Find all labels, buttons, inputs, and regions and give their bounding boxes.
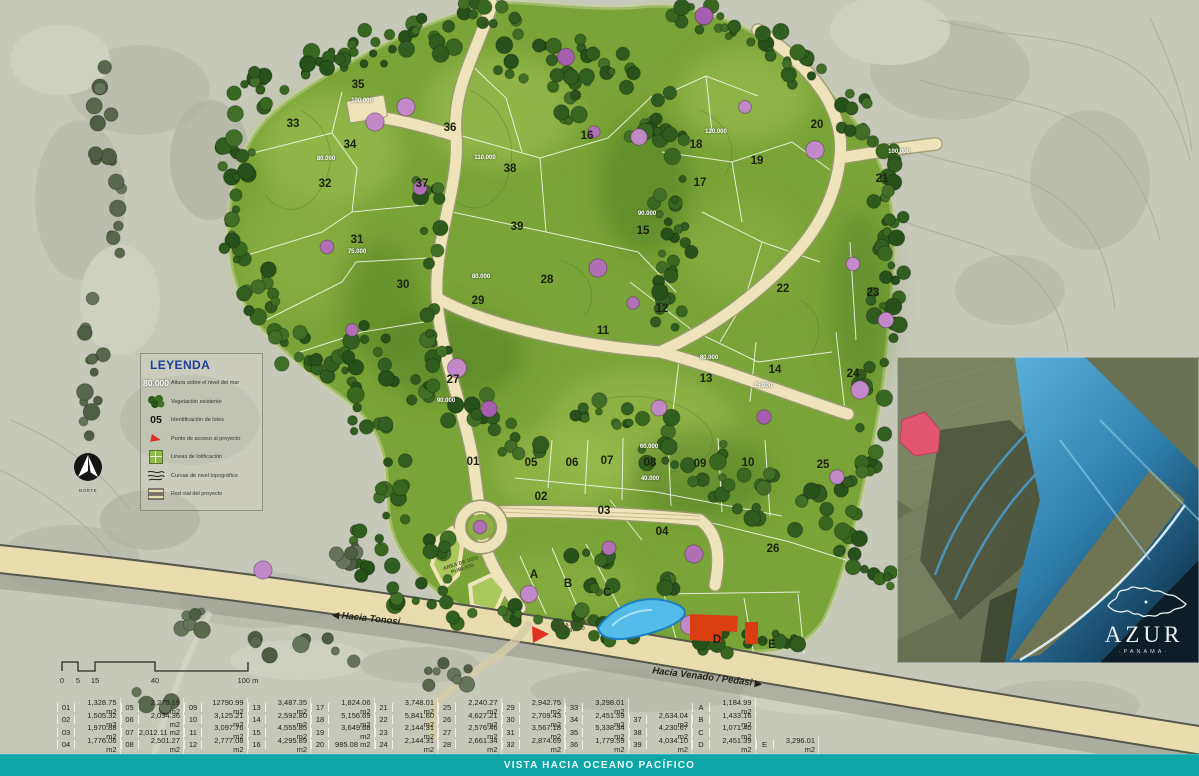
tree-icon bbox=[493, 66, 502, 75]
tree-icon bbox=[488, 423, 501, 436]
tree-icon bbox=[227, 86, 241, 100]
tree-icon bbox=[882, 185, 895, 198]
lot-id: 13 bbox=[248, 703, 266, 712]
lot-number-label: 13 bbox=[700, 373, 713, 385]
lot-number-label: 20 bbox=[811, 119, 824, 131]
tree-icon bbox=[479, 388, 494, 403]
satellite-inset bbox=[897, 357, 1199, 663]
lot-number-label: 07 bbox=[601, 455, 614, 467]
lot-area: 2,661.34 m2 bbox=[456, 736, 502, 754]
tree-icon bbox=[225, 130, 242, 147]
tree-icon bbox=[844, 125, 856, 137]
site-plan-canvas: 3533343231363738391615182019172122231211… bbox=[0, 0, 1199, 776]
tree-icon bbox=[752, 503, 761, 512]
tree-icon bbox=[773, 23, 789, 39]
lot-id: 32 bbox=[502, 740, 520, 749]
tree-icon bbox=[688, 476, 699, 487]
tree-icon bbox=[790, 44, 806, 60]
tree-icon bbox=[807, 72, 816, 81]
lot-number-label: 33 bbox=[287, 118, 300, 130]
lot-id: D bbox=[692, 740, 710, 749]
flowering-tree-icon bbox=[557, 48, 574, 65]
flowering-tree-icon bbox=[481, 401, 497, 417]
lot-id: 28 bbox=[438, 740, 456, 749]
tree-icon bbox=[772, 630, 779, 637]
elevation-label: 75.000 bbox=[348, 249, 366, 255]
lot-area: 4,034.10 m2 bbox=[647, 736, 693, 754]
tree-icon bbox=[434, 193, 446, 205]
lot-id: E bbox=[756, 740, 774, 749]
tree-icon bbox=[595, 554, 608, 567]
tree-icon bbox=[664, 269, 678, 283]
lot-id: 22 bbox=[375, 715, 393, 724]
tree-icon bbox=[446, 611, 459, 624]
lot-id: 39 bbox=[629, 740, 647, 749]
tree-icon bbox=[878, 246, 893, 261]
tree-icon bbox=[400, 515, 410, 525]
tree-icon bbox=[98, 60, 112, 74]
tree-icon bbox=[86, 292, 99, 305]
tree-icon bbox=[650, 113, 662, 125]
lot-id: 04 bbox=[57, 740, 75, 749]
tree-icon bbox=[77, 384, 94, 401]
footer-caption: VISTA HACIA OCEANO PACÍFICO bbox=[504, 760, 695, 771]
tree-icon bbox=[424, 667, 432, 675]
lot-area-cell: 394,034.10 m2 bbox=[629, 739, 693, 750]
flowering-tree-icon bbox=[757, 410, 771, 424]
tree-icon bbox=[550, 68, 564, 82]
tree-icon bbox=[378, 370, 394, 386]
flowering-tree-icon bbox=[695, 7, 713, 25]
lot-area-cell: 322,874.69 m2 bbox=[502, 739, 566, 750]
tree-icon bbox=[662, 457, 670, 465]
tree-icon bbox=[685, 245, 698, 258]
lot-id: 06 bbox=[121, 715, 139, 724]
flowering-tree-icon bbox=[851, 381, 869, 399]
lot-id: 21 bbox=[375, 703, 393, 712]
tree-icon bbox=[194, 622, 211, 639]
tree-icon bbox=[358, 23, 372, 37]
tree-icon bbox=[722, 479, 735, 492]
tree-icon bbox=[443, 20, 455, 32]
lot-id: 07 bbox=[121, 728, 139, 737]
elevation-label: 120.000 bbox=[705, 129, 727, 135]
tree-icon bbox=[679, 175, 686, 182]
flowering-tree-icon bbox=[830, 470, 844, 484]
tree-icon bbox=[834, 546, 845, 557]
tree-icon bbox=[803, 483, 819, 499]
tree-icon bbox=[710, 453, 727, 470]
lot-number-label: 05 bbox=[525, 457, 538, 469]
flowering-tree-icon bbox=[320, 240, 334, 254]
tree-icon bbox=[563, 69, 579, 85]
lot-id: 30 bbox=[502, 715, 520, 724]
lot-id: B bbox=[692, 715, 710, 724]
tree-icon bbox=[588, 630, 599, 641]
tree-icon bbox=[509, 12, 521, 24]
lot-number-label: 31 bbox=[351, 234, 364, 246]
tree-icon bbox=[782, 59, 791, 68]
lot-id: 20 bbox=[311, 740, 329, 749]
tree-icon bbox=[608, 68, 615, 75]
tree-icon bbox=[755, 26, 770, 41]
tree-icon bbox=[431, 244, 444, 257]
flowering-tree-icon bbox=[473, 520, 486, 533]
tree-icon bbox=[359, 320, 370, 331]
tree-icon bbox=[420, 227, 428, 235]
lot-number-label: 09 bbox=[694, 458, 707, 470]
tree-icon bbox=[506, 418, 517, 429]
elevation-label: 80.000 bbox=[472, 274, 490, 280]
scale-tick-label: 0 bbox=[60, 676, 64, 685]
tree-icon bbox=[427, 599, 437, 609]
tree-icon bbox=[728, 20, 741, 33]
lot-area-cell: 082,501.27 m2 bbox=[121, 739, 185, 750]
tree-icon bbox=[107, 231, 121, 245]
tree-icon bbox=[189, 608, 201, 620]
tree-icon bbox=[546, 54, 557, 65]
tree-icon bbox=[574, 603, 589, 618]
tree-icon bbox=[268, 331, 282, 345]
tree-icon bbox=[412, 597, 420, 605]
legend-item-label: Punto de acceso al proyecto bbox=[171, 436, 240, 442]
tree-icon bbox=[310, 353, 322, 365]
brand-logo-subtext: ·PANAMA· bbox=[1094, 649, 1194, 655]
tree-icon bbox=[747, 38, 756, 47]
lot-id: 24 bbox=[375, 740, 393, 749]
access-point-icon bbox=[150, 434, 161, 444]
tree-icon bbox=[532, 39, 545, 52]
tree-icon bbox=[378, 417, 393, 432]
tree-icon bbox=[219, 243, 230, 254]
lot-number-label: 34 bbox=[344, 139, 357, 151]
legend-panel: LEYENDA 80.000 Altura sobre el nivel del… bbox=[140, 353, 263, 511]
tree-icon bbox=[498, 606, 508, 616]
tree-icon bbox=[579, 69, 595, 85]
tree-icon bbox=[439, 541, 451, 553]
lot-id: C bbox=[692, 728, 710, 737]
tree-icon bbox=[658, 250, 665, 257]
tree-icon bbox=[725, 33, 732, 40]
tree-icon bbox=[322, 633, 334, 645]
lot-id: 19 bbox=[311, 728, 329, 737]
tree-icon bbox=[467, 608, 477, 618]
tree-icon bbox=[412, 27, 420, 35]
legend-item-access: Punto de acceso al proyecto bbox=[141, 430, 262, 449]
lot-area: 2,501.27 m2 bbox=[139, 736, 185, 754]
tree-icon bbox=[889, 230, 905, 246]
tree-icon bbox=[345, 547, 358, 560]
tree-icon bbox=[625, 419, 633, 427]
tree-icon bbox=[261, 262, 277, 278]
tree-icon bbox=[845, 559, 861, 575]
lot-id: 26 bbox=[438, 715, 456, 724]
tree-icon bbox=[887, 157, 902, 172]
table-row: 041,776.06 m2082,501.27 m2122,777.08 m21… bbox=[57, 739, 823, 752]
tree-icon bbox=[90, 368, 98, 376]
arrow-left-icon: ◀ bbox=[332, 609, 340, 620]
elevation-label: 90.000 bbox=[437, 398, 455, 404]
tree-icon bbox=[877, 427, 891, 441]
tree-icon bbox=[319, 61, 334, 76]
lot-number-label: 03 bbox=[598, 505, 611, 517]
tree-icon bbox=[458, 0, 470, 9]
lot-area: 2,874.69 m2 bbox=[520, 736, 566, 754]
tree-icon bbox=[674, 225, 683, 234]
tree-icon bbox=[426, 358, 440, 372]
tree-icon bbox=[744, 510, 761, 527]
tree-icon bbox=[300, 56, 316, 72]
lot-id: 02 bbox=[57, 715, 75, 724]
tree-icon bbox=[737, 468, 751, 482]
tree-icon bbox=[613, 421, 622, 430]
tree-icon bbox=[763, 468, 776, 481]
tree-icon bbox=[90, 115, 106, 131]
tree-icon bbox=[353, 403, 362, 412]
tree-icon bbox=[293, 325, 307, 339]
tree-icon bbox=[84, 431, 94, 441]
scale-tick-label: 15 bbox=[91, 676, 99, 685]
tree-icon bbox=[721, 647, 734, 660]
tree-icon bbox=[663, 127, 678, 142]
legend-item-elevation: 80.000 Altura sobre el nivel del mar bbox=[141, 374, 262, 393]
lot-id: 17 bbox=[311, 703, 329, 712]
tree-icon bbox=[387, 582, 399, 594]
tree-icon bbox=[383, 458, 392, 467]
tree-icon bbox=[94, 82, 106, 94]
lot-area-cell: 041,776.06 m2 bbox=[57, 739, 121, 750]
lot-area: 2,777.08 m2 bbox=[202, 736, 248, 754]
lot-id: 05 bbox=[121, 703, 139, 712]
tree-icon bbox=[652, 284, 668, 300]
lot-area: 1,776.06 m2 bbox=[75, 736, 121, 754]
tree-icon bbox=[820, 502, 834, 516]
lot-number-label: 01 bbox=[467, 456, 480, 468]
scale-tick-label: 100 m bbox=[238, 676, 259, 685]
tree-icon bbox=[349, 48, 358, 57]
tree-icon bbox=[420, 308, 435, 323]
flowering-tree-icon bbox=[602, 541, 616, 555]
legend-item-label: Red vial del proyecto bbox=[171, 491, 222, 497]
lot-id: 36 bbox=[565, 740, 583, 749]
tree-icon bbox=[359, 420, 374, 435]
lot-number-label: 21 bbox=[876, 173, 889, 185]
flowering-tree-icon bbox=[627, 297, 639, 309]
tree-icon bbox=[564, 548, 579, 563]
tree-icon bbox=[88, 147, 102, 161]
tree-icon bbox=[867, 195, 881, 209]
tree-icon bbox=[360, 335, 369, 344]
tree-icon bbox=[661, 439, 677, 455]
flowering-tree-icon bbox=[397, 98, 415, 116]
lot-number-label: C bbox=[603, 587, 611, 599]
tree-icon bbox=[671, 196, 678, 203]
tree-icon bbox=[862, 98, 873, 109]
tree-icon bbox=[477, 0, 492, 15]
tree-icon bbox=[360, 60, 368, 68]
tree-icon bbox=[671, 323, 679, 331]
tree-icon bbox=[619, 80, 633, 94]
lot-number-label: 04 bbox=[656, 526, 669, 538]
elevation-label: 90.000 bbox=[638, 211, 656, 217]
lot-id: 25 bbox=[438, 703, 456, 712]
tree-icon bbox=[433, 220, 448, 235]
flowering-tree-icon bbox=[739, 101, 752, 114]
lot-area-cell: 122,777.08 m2 bbox=[184, 739, 248, 750]
tree-icon bbox=[233, 256, 240, 263]
elevation-label: 80.000 bbox=[700, 355, 718, 361]
tree-icon bbox=[781, 67, 796, 82]
tree-icon bbox=[350, 427, 358, 435]
lot-id: 08 bbox=[121, 740, 139, 749]
contours-icon bbox=[141, 469, 171, 482]
tree-icon bbox=[438, 657, 450, 669]
tree-icon bbox=[756, 481, 771, 496]
lot-id: 18 bbox=[311, 715, 329, 724]
tree-icon bbox=[656, 210, 664, 218]
tree-icon bbox=[369, 50, 377, 58]
lot-area-cell: 062,034.36 m2 bbox=[121, 714, 185, 725]
tree-icon bbox=[114, 221, 124, 231]
scale-bar-shape bbox=[58, 652, 278, 674]
tree-icon bbox=[342, 351, 355, 364]
tree-icon bbox=[115, 248, 125, 258]
tree-icon bbox=[589, 583, 599, 593]
lot-number-label: 25 bbox=[817, 459, 830, 471]
flowering-tree-icon bbox=[346, 324, 359, 337]
tree-icon bbox=[678, 134, 690, 146]
tree-icon bbox=[248, 66, 260, 78]
tree-icon bbox=[334, 54, 345, 65]
tree-icon bbox=[879, 302, 886, 309]
elevation-sample: 80.000 bbox=[143, 378, 169, 388]
tree-icon bbox=[293, 636, 310, 653]
lot-number-label: 18 bbox=[690, 139, 703, 151]
lot-area: 1,779.59 m2 bbox=[583, 736, 629, 754]
lot-area: 3,296.01 m2 bbox=[774, 736, 820, 754]
lot-area-cell: D2,451.39 m2 bbox=[692, 739, 756, 750]
lot-id: 16 bbox=[248, 740, 266, 749]
tree-icon bbox=[674, 0, 690, 16]
lot-id: 35 bbox=[565, 728, 583, 737]
tree-icon bbox=[489, 19, 498, 28]
tree-icon bbox=[86, 98, 102, 114]
legend-item-vegetation: Vegetación existente bbox=[141, 393, 262, 412]
tree-icon bbox=[348, 416, 358, 426]
tree-icon bbox=[423, 544, 438, 559]
lot-number-label: 38 bbox=[504, 163, 517, 175]
lot-number-label: 11 bbox=[597, 325, 609, 337]
tree-icon bbox=[237, 287, 252, 302]
lot-number-label: 32 bbox=[319, 178, 332, 190]
tree-icon bbox=[664, 148, 681, 165]
tree-icon bbox=[259, 97, 272, 110]
tree-icon bbox=[732, 504, 742, 514]
tree-icon bbox=[477, 17, 489, 29]
tree-icon bbox=[375, 483, 387, 495]
lot-id: 33 bbox=[565, 703, 583, 712]
tree-icon bbox=[880, 358, 889, 367]
tree-icon bbox=[355, 569, 368, 582]
tree-icon bbox=[388, 45, 396, 53]
elevation-label: 100.000 bbox=[888, 149, 910, 155]
tree-icon bbox=[251, 280, 265, 294]
arrow-right-icon: ▶ bbox=[754, 678, 762, 689]
tree-icon bbox=[495, 0, 508, 13]
tree-icon bbox=[657, 580, 673, 596]
elevation-label: 100.000 bbox=[351, 98, 373, 104]
tree-icon bbox=[790, 636, 806, 652]
tree-icon bbox=[415, 577, 427, 589]
tree-icon bbox=[241, 80, 249, 88]
lot-id: 12 bbox=[184, 740, 202, 749]
tree-icon bbox=[834, 523, 851, 540]
tree-icon bbox=[580, 414, 589, 423]
tree-icon bbox=[654, 127, 662, 135]
flowering-tree-icon bbox=[366, 113, 384, 131]
tree-icon bbox=[616, 47, 629, 60]
tree-icon bbox=[496, 37, 513, 54]
scale-bar: 051540100 m bbox=[58, 652, 278, 694]
tree-icon bbox=[884, 214, 896, 226]
tree-icon bbox=[230, 189, 242, 201]
tree-icon bbox=[664, 218, 672, 226]
tree-icon bbox=[438, 586, 448, 596]
tree-icon bbox=[787, 522, 802, 537]
tree-icon bbox=[533, 615, 542, 624]
lot-area: 985.08 m2 bbox=[329, 740, 375, 749]
tree-icon bbox=[864, 361, 876, 373]
tree-icon bbox=[717, 13, 724, 20]
tree-icon bbox=[582, 549, 590, 557]
elevation-label: 75.000 bbox=[754, 383, 772, 389]
flowering-tree-icon bbox=[589, 259, 607, 277]
tree-icon bbox=[348, 655, 361, 668]
tree-icon bbox=[765, 50, 776, 61]
tree-icon bbox=[432, 46, 449, 63]
tree-icon bbox=[845, 102, 858, 115]
tree-icon bbox=[586, 47, 600, 61]
lot-id: 01 bbox=[57, 703, 75, 712]
tree-icon bbox=[375, 534, 384, 543]
tree-icon bbox=[441, 413, 456, 428]
scale-tick-label: 5 bbox=[76, 676, 80, 685]
lot-id: 15 bbox=[248, 728, 266, 737]
tree-icon bbox=[464, 664, 473, 673]
tree-icon bbox=[224, 212, 239, 227]
tree-icon bbox=[381, 334, 390, 343]
tree-icon bbox=[512, 447, 525, 460]
tree-icon bbox=[505, 69, 514, 78]
elevation-label: 60.000 bbox=[640, 444, 658, 450]
tree-icon bbox=[384, 558, 400, 574]
legend-item-label: Lineas de lotificación bbox=[171, 454, 222, 460]
lot-number-label: B bbox=[564, 578, 572, 590]
tree-icon bbox=[846, 505, 858, 517]
flowering-tree-icon bbox=[685, 545, 703, 563]
tree-icon bbox=[695, 25, 704, 34]
tree-icon bbox=[663, 86, 676, 99]
tree-icon bbox=[650, 317, 660, 327]
tree-icon bbox=[250, 636, 262, 648]
tree-icon bbox=[423, 258, 434, 269]
lot-number-label: 35 bbox=[352, 79, 365, 91]
tree-icon bbox=[398, 41, 414, 57]
flowering-tree-icon bbox=[254, 561, 272, 579]
lot-id: 31 bbox=[502, 728, 520, 737]
tree-icon bbox=[407, 395, 417, 405]
tree-icon bbox=[383, 512, 390, 519]
